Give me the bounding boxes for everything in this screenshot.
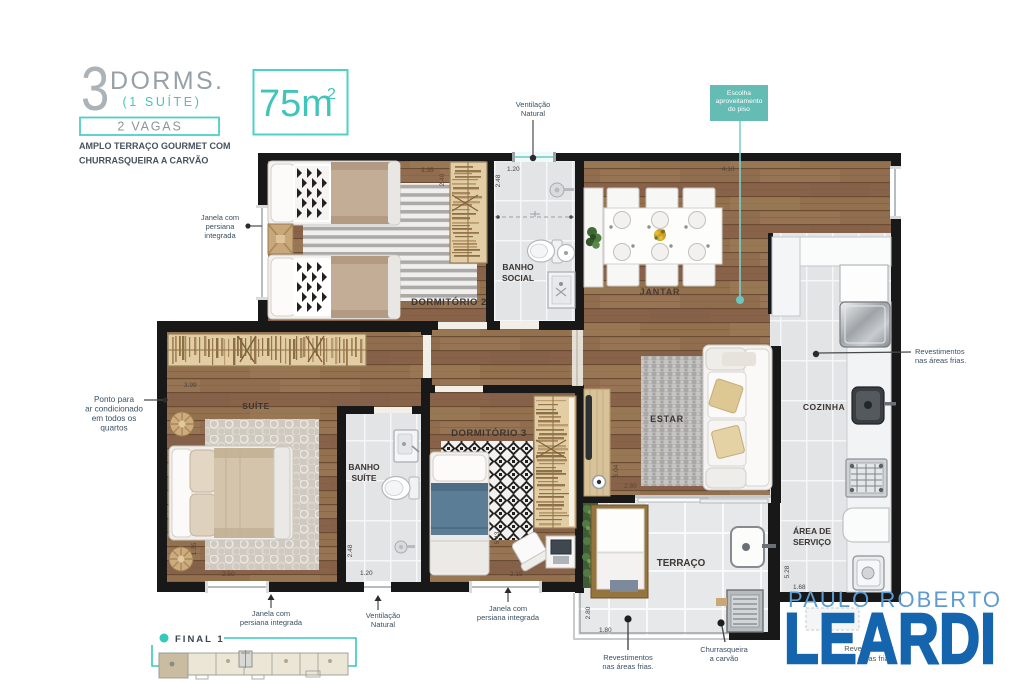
svg-text:Ponto para: Ponto para	[94, 395, 135, 404]
svg-text:JANTAR: JANTAR	[640, 287, 681, 297]
svg-text:2.40: 2.40	[439, 173, 446, 186]
svg-text:nas áreas frias.: nas áreas frias.	[602, 662, 653, 671]
svg-text:ÁREA DE: ÁREA DE	[793, 526, 831, 536]
svg-text:TERRAÇO: TERRAÇO	[657, 558, 706, 569]
svg-text:em todos os: em todos os	[92, 414, 137, 423]
svg-text:1.20: 1.20	[360, 570, 373, 577]
svg-text:Natural: Natural	[521, 109, 546, 118]
svg-text:2.50: 2.50	[222, 571, 235, 578]
svg-text:Churrasqueira: Churrasqueira	[700, 645, 748, 654]
svg-text:Natural: Natural	[371, 620, 396, 629]
svg-text:2.48: 2.48	[347, 544, 354, 557]
svg-text:2 VAGAS: 2 VAGAS	[117, 120, 182, 134]
svg-text:integrada: integrada	[204, 231, 236, 240]
svg-text:Ventilação: Ventilação	[366, 611, 401, 620]
svg-text:SERVIÇO: SERVIÇO	[793, 537, 831, 547]
svg-text:COZINHA: COZINHA	[803, 402, 845, 412]
svg-text:ar condicionado: ar condicionado	[85, 405, 143, 414]
svg-text:DORMITÓRIO 3: DORMITÓRIO 3	[451, 427, 527, 439]
svg-text:2.80: 2.80	[585, 606, 592, 619]
svg-text:SUÍTE: SUÍTE	[351, 473, 376, 483]
svg-text:Janela com: Janela com	[201, 213, 239, 222]
svg-text:nas áreas frias.: nas áreas frias.	[915, 356, 966, 365]
svg-text:2.80: 2.80	[624, 483, 637, 490]
svg-text:AMPLO TERRAÇO GOURMET COM: AMPLO TERRAÇO GOURMET COM	[79, 141, 231, 151]
svg-text:Janela com: Janela com	[252, 609, 290, 618]
svg-text:1.20: 1.20	[507, 166, 520, 173]
svg-text:FINAL 1: FINAL 1	[175, 634, 225, 645]
svg-text:CHURRASQUEIRA A CARVÃO: CHURRASQUEIRA A CARVÃO	[79, 156, 208, 166]
svg-text:aproveitamento: aproveitamento	[716, 98, 763, 105]
svg-text:Ventilação: Ventilação	[516, 100, 551, 109]
svg-text:LEARDI: LEARDI	[784, 600, 996, 679]
svg-text:persiana integrada: persiana integrada	[240, 618, 303, 627]
svg-text:SUÍTE: SUÍTE	[242, 401, 270, 411]
svg-text:5.04: 5.04	[613, 464, 620, 477]
svg-text:(1 SUÍTE): (1 SUÍTE)	[123, 94, 202, 109]
svg-text:BANHO: BANHO	[502, 262, 534, 272]
svg-text:SOCIAL: SOCIAL	[502, 273, 534, 283]
svg-text:BANHO: BANHO	[348, 462, 380, 472]
svg-text:Escolha: Escolha	[727, 90, 751, 97]
svg-text:quartos: quartos	[100, 424, 127, 433]
svg-text:3: 3	[81, 55, 109, 124]
svg-text:Revestimentos: Revestimentos	[603, 653, 653, 662]
svg-text:3.35: 3.35	[421, 167, 434, 174]
svg-text:75m: 75m	[259, 83, 333, 125]
svg-text:Janela com: Janela com	[489, 604, 527, 613]
svg-text:2.15: 2.15	[510, 571, 523, 578]
svg-text:a carvão: a carvão	[710, 654, 739, 663]
svg-text:2: 2	[327, 86, 336, 103]
svg-text:1.35: 1.35	[191, 542, 198, 555]
svg-text:1.80: 1.80	[599, 627, 612, 634]
svg-text:persiana: persiana	[206, 222, 236, 231]
svg-text:persiana integrada: persiana integrada	[477, 613, 540, 622]
svg-text:do piso: do piso	[728, 106, 750, 113]
svg-text:DORMITÓRIO 2: DORMITÓRIO 2	[411, 296, 487, 308]
svg-text:2.48: 2.48	[495, 174, 502, 187]
svg-text:DORMS.: DORMS.	[110, 67, 224, 95]
svg-text:Revestimentos: Revestimentos	[915, 347, 965, 356]
svg-text:ESTAR: ESTAR	[650, 414, 684, 424]
svg-text:4.10: 4.10	[722, 166, 735, 173]
svg-text:5.43: 5.43	[494, 531, 501, 544]
svg-text:5.28: 5.28	[784, 565, 791, 578]
svg-text:3.99: 3.99	[184, 382, 197, 389]
